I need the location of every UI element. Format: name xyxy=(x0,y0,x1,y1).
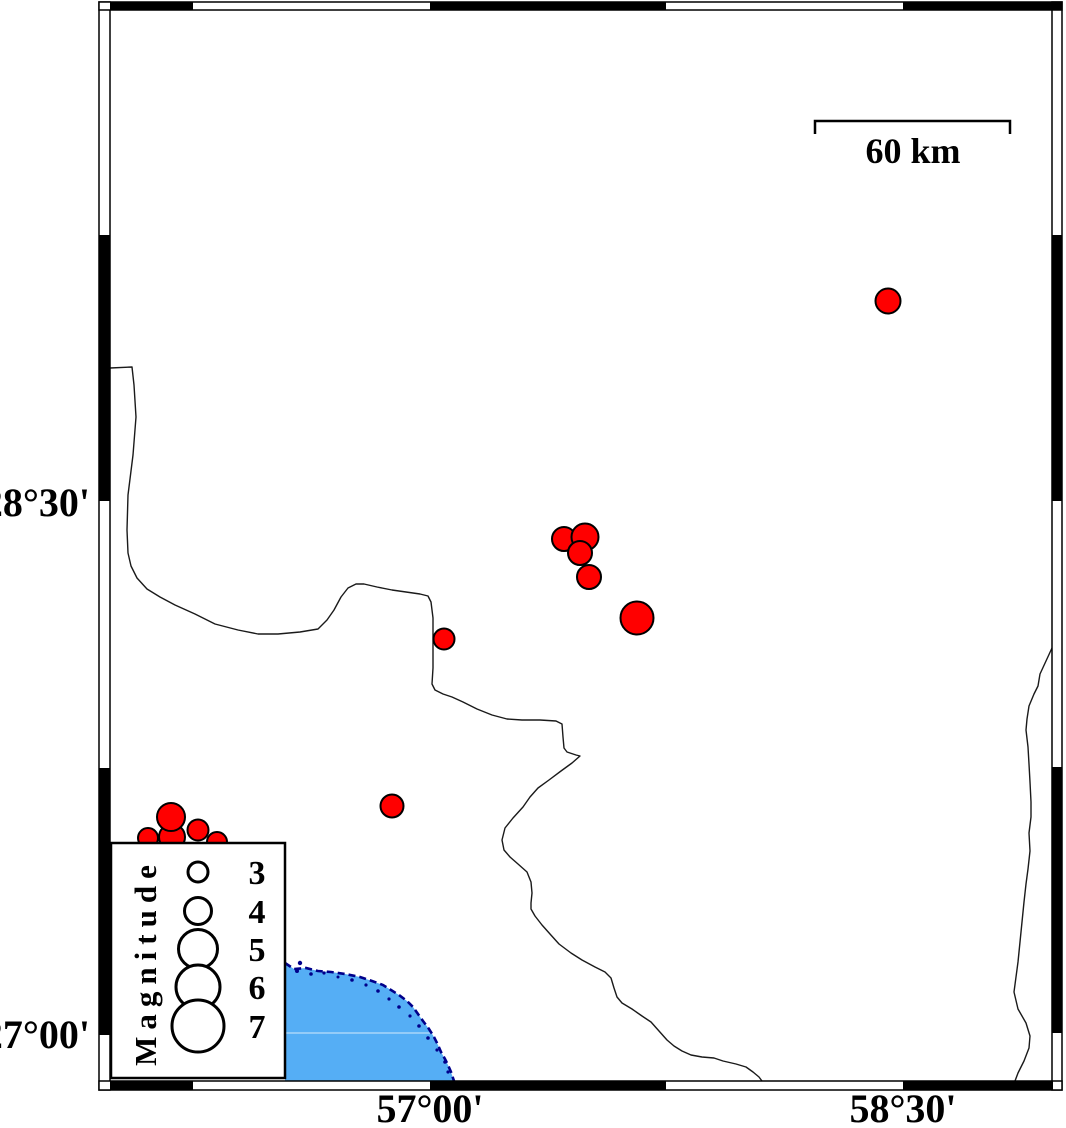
frame-black-left xyxy=(99,768,110,1035)
earthquake-marker xyxy=(876,289,901,314)
earthquake-marker xyxy=(577,565,601,589)
frame-black-right xyxy=(1052,235,1062,501)
frame-black-top xyxy=(430,2,666,10)
lon-label-57-00: 57°00' xyxy=(376,1086,483,1128)
frame-black-top xyxy=(110,2,193,10)
islet xyxy=(298,961,302,965)
seismicity-map: Magnitude 34567 60 km 28°30' 27°00' 57°0… xyxy=(0,0,1066,1128)
scale-bar: 60 km xyxy=(815,121,1010,171)
legend-label-7: 7 xyxy=(249,1009,266,1046)
lon-label-58-30: 58°30' xyxy=(849,1086,956,1128)
earthquake-marker xyxy=(434,629,455,650)
earthquake-marker xyxy=(568,541,592,565)
legend-label-5: 5 xyxy=(249,932,266,969)
earthquake-layer xyxy=(138,289,901,853)
magnitude-legend: Magnitude 34567 xyxy=(111,843,285,1078)
earthquake-marker xyxy=(381,795,404,818)
earthquake-marker xyxy=(188,820,209,841)
lat-label-28-30: 28°30' xyxy=(0,480,90,525)
islet xyxy=(435,1048,438,1051)
scale-bar-label: 60 km xyxy=(865,131,960,171)
islet xyxy=(337,976,340,979)
islet xyxy=(350,978,354,982)
boundary-line-east xyxy=(1014,648,1052,1081)
legend-circle-3 xyxy=(188,862,208,882)
frame-black-right xyxy=(1052,767,1062,1033)
frame-black-top xyxy=(903,2,1062,10)
islet xyxy=(376,989,380,993)
earthquake-marker xyxy=(157,803,185,831)
legend-label-4: 4 xyxy=(249,894,266,931)
islet xyxy=(387,997,390,1000)
earthquake-marker xyxy=(621,602,654,635)
islet xyxy=(426,1036,430,1040)
islet xyxy=(417,1024,421,1028)
legend-circle-4 xyxy=(185,898,212,925)
lat-label-27-00: 27°00' xyxy=(0,1012,90,1057)
legend-circle-7 xyxy=(172,1000,224,1052)
islet xyxy=(408,1014,411,1017)
frame-black-left xyxy=(99,235,110,501)
legend-circle-5 xyxy=(179,930,218,969)
islet xyxy=(322,971,325,974)
islet xyxy=(309,972,313,976)
islet xyxy=(364,983,367,986)
frame-black-bottom xyxy=(110,1081,193,1090)
legend-label-3: 3 xyxy=(249,855,266,892)
islet xyxy=(443,1060,447,1064)
islet xyxy=(446,1070,449,1073)
legend-title: Magnitude xyxy=(128,858,163,1066)
islet xyxy=(397,1005,401,1009)
legend-label-6: 6 xyxy=(249,970,266,1007)
sea-area xyxy=(285,963,454,1081)
islet xyxy=(295,969,299,973)
